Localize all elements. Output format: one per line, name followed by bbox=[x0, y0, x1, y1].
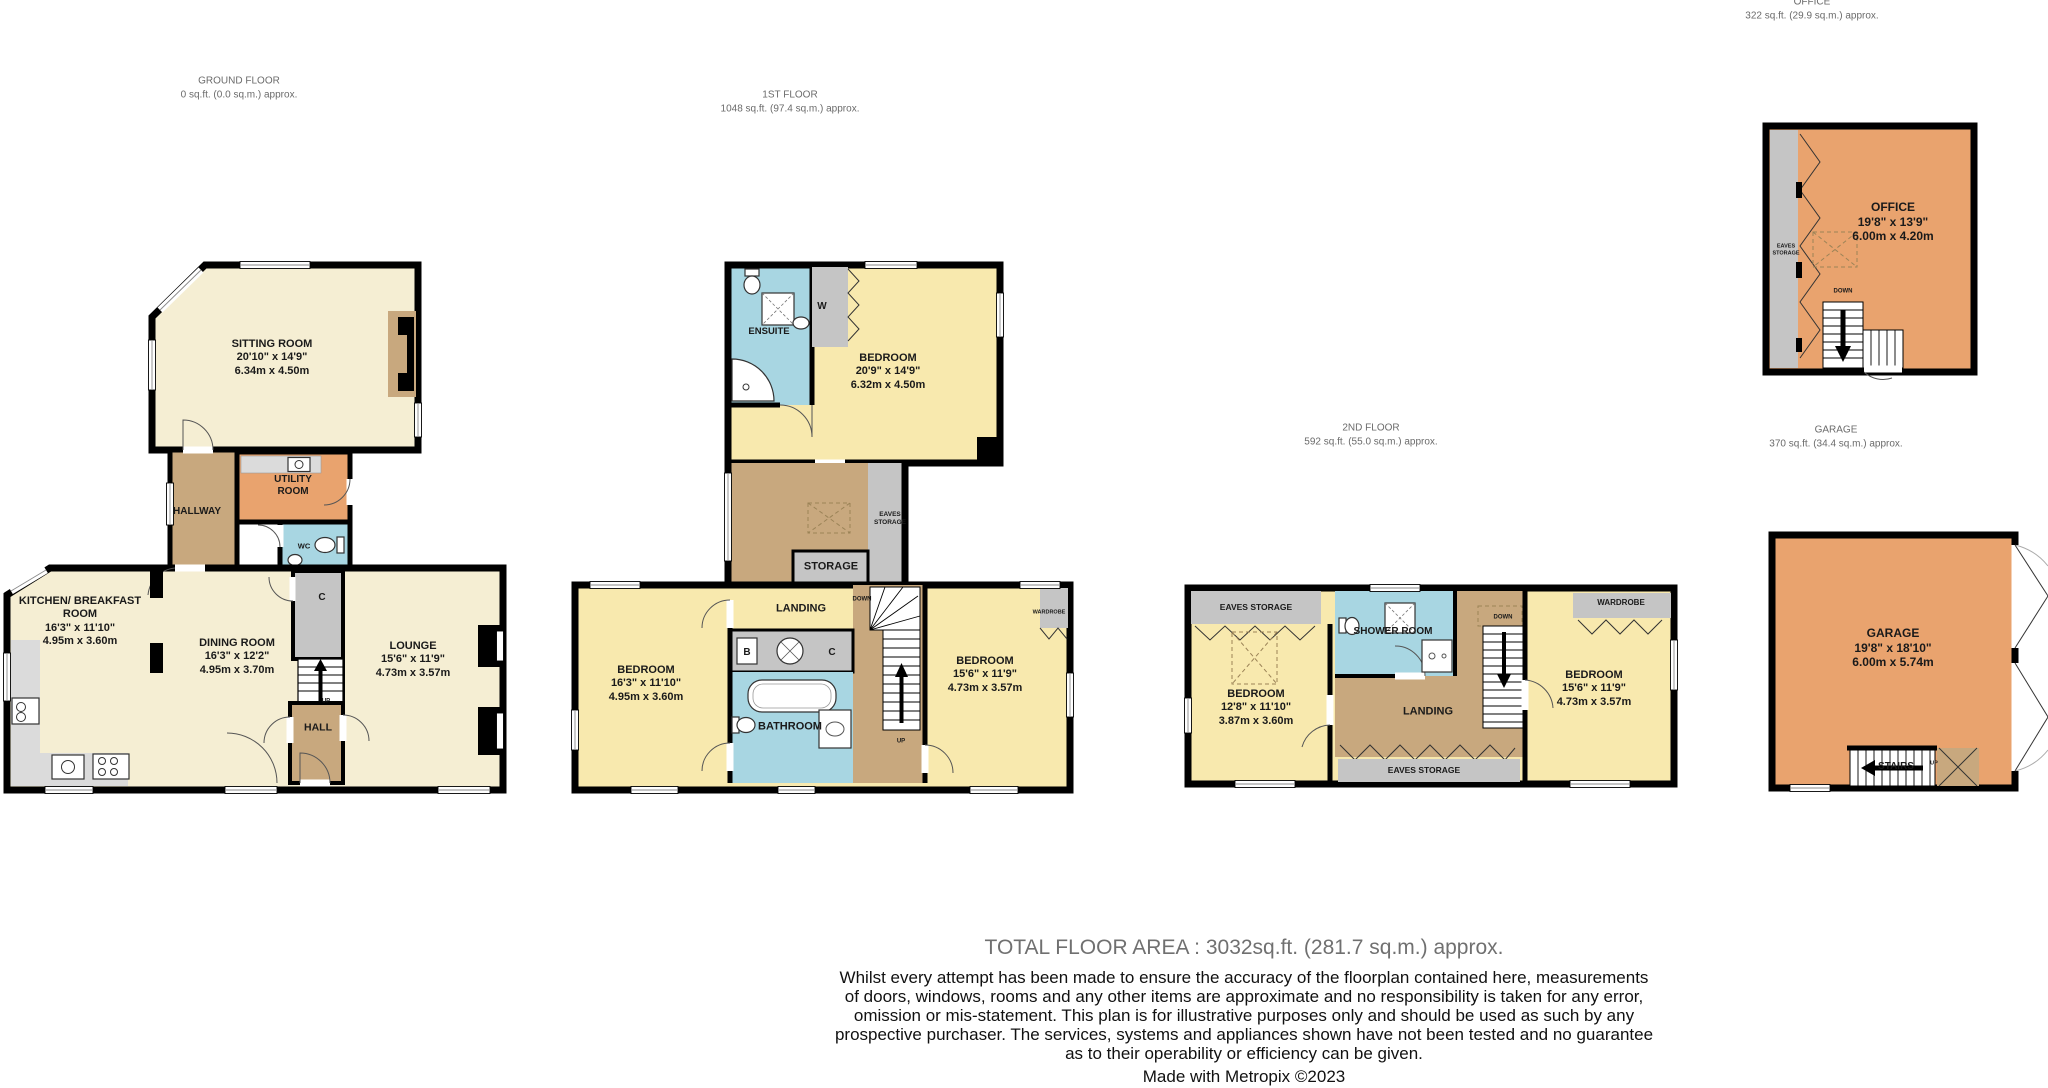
total-floor-area: TOTAL FLOOR AREA : 3032sq.ft. (281.7 sq.… bbox=[984, 936, 1503, 960]
office-metric: 6.00m x 4.20m bbox=[1852, 229, 1933, 244]
eaves-storage-label-office: EAVES STORAGE bbox=[1768, 243, 1804, 256]
floor-title-second-area: 592 sq.ft. (55.0 sq.m.) approx. bbox=[1304, 435, 1437, 449]
lounge-metric: 4.73m x 3.57m bbox=[376, 667, 451, 680]
wardrobe-label-first: WARDROBE bbox=[1033, 610, 1066, 617]
stairs-down-label-second: DOWN bbox=[1494, 614, 1513, 621]
cupboard-label-first: C bbox=[828, 647, 835, 659]
floor-title-second-name: 2ND FLOOR bbox=[1304, 422, 1437, 436]
room-label-dining-room: DINING ROOM 16'3" x 12'2" 4.95m x 3.70m bbox=[199, 637, 275, 677]
room-label-garage: GARAGE 19'8" x 18'10" 6.00m x 5.74m bbox=[1852, 626, 1933, 670]
floor-title-office-name: OFFICE bbox=[1745, 0, 1878, 9]
dining-room-metric: 4.95m x 3.70m bbox=[199, 664, 275, 677]
floor-title-garage-area: 370 sq.ft. (34.4 sq.m.) approx. bbox=[1769, 437, 1902, 451]
bedroom-2-metric: 4.95m x 3.60m bbox=[609, 691, 684, 704]
stairs-up-label-garage: UP bbox=[1930, 761, 1938, 768]
ground-floor-plan bbox=[0, 255, 512, 795]
eaves-storage-label-second-bottom: EAVES STORAGE bbox=[1388, 765, 1460, 775]
lounge-name: LOUNGE bbox=[376, 640, 451, 653]
room-label-lounge: LOUNGE 15'6" x 11'9" 4.73m x 3.57m bbox=[376, 640, 451, 680]
kitchen-metric: 4.95m x 3.60m bbox=[17, 635, 143, 648]
kitchen-name: KITCHEN/ BREAKFAST ROOM bbox=[17, 595, 143, 622]
bedroom-5-imperial: 15'6" x 11'9" bbox=[1557, 682, 1632, 695]
first-floor-plan bbox=[565, 255, 1085, 795]
eaves-storage-label-second-top: EAVES STORAGE bbox=[1220, 602, 1292, 612]
room-label-bedroom-3: BEDROOM 15'6" x 11'9" 4.73m x 3.57m bbox=[948, 655, 1023, 695]
floor-title-ground-area: 0 sq.ft. (0.0 sq.m.) approx. bbox=[181, 88, 298, 102]
stairs-label-garage: STAIRS bbox=[1878, 761, 1914, 773]
bedroom-2-imperial: 16'3" x 11'10" bbox=[609, 677, 684, 690]
room-label-bedroom-2: BEDROOM 16'3" x 11'10" 4.95m x 3.60m bbox=[609, 664, 684, 704]
stairs-up-label-first: UP bbox=[897, 738, 905, 745]
floor-title-second: 2ND FLOOR 592 sq.ft. (55.0 sq.m.) approx… bbox=[1304, 422, 1437, 449]
room-label-shower-room: SHOWER ROOM bbox=[1354, 626, 1433, 638]
room-label-kitchen: KITCHEN/ BREAKFAST ROOM 16'3" x 11'10" 4… bbox=[17, 595, 143, 649]
made-with-credit: Made with Metropix ©2023 bbox=[1143, 1067, 1345, 1087]
floorplan-page: GROUND FLOOR 0 sq.ft. (0.0 sq.m.) approx… bbox=[0, 0, 2048, 1088]
office-imperial: 19'8" x 13'9" bbox=[1852, 215, 1933, 230]
floor-title-ground: GROUND FLOOR 0 sq.ft. (0.0 sq.m.) approx… bbox=[181, 75, 298, 102]
stairs-down-label-first: DOWN bbox=[853, 596, 872, 603]
room-label-sitting-room: SITTING ROOM 20'10" x 14'9" 6.34m x 4.50… bbox=[232, 338, 313, 378]
floor-title-first: 1ST FLOOR 1048 sq.ft. (97.4 sq.m.) appro… bbox=[721, 89, 860, 116]
room-label-utility-room: UTILITY ROOM bbox=[264, 474, 322, 498]
bedroom-3-imperial: 15'6" x 11'9" bbox=[948, 668, 1023, 681]
room-label-landing-second: LANDING bbox=[1403, 705, 1453, 718]
bedroom-5-metric: 4.73m x 3.57m bbox=[1557, 696, 1632, 709]
floor-title-first-area: 1048 sq.ft. (97.4 sq.m.) approx. bbox=[721, 102, 860, 116]
room-label-hall: HALL bbox=[304, 722, 332, 735]
cupboard-label-ground: C bbox=[318, 592, 325, 604]
lounge-imperial: 15'6" x 11'9" bbox=[376, 653, 451, 666]
room-label-office: OFFICE 19'8" x 13'9" 6.00m x 4.20m bbox=[1852, 200, 1933, 244]
room-label-bedroom-master: BEDROOM 20'9" x 14'9" 6.32m x 4.50m bbox=[851, 352, 926, 392]
wardrobe-label-second: WARDROBE bbox=[1597, 598, 1645, 608]
disclaimer-text: Whilst every attempt has been made to en… bbox=[764, 968, 1724, 1063]
bedroom-4-imperial: 12'8" x 11'10" bbox=[1219, 701, 1294, 714]
dining-room-name: DINING ROOM bbox=[199, 637, 275, 650]
bedroom-master-imperial: 20'9" x 14'9" bbox=[851, 365, 926, 378]
floor-title-first-name: 1ST FLOOR bbox=[721, 89, 860, 103]
garage-name: GARAGE bbox=[1852, 626, 1933, 641]
office-name: OFFICE bbox=[1852, 200, 1933, 215]
floor-title-office-area: 322 sq.ft. (29.9 sq.m.) approx. bbox=[1745, 9, 1878, 23]
room-label-storage: STORAGE bbox=[804, 560, 858, 573]
bedroom-4-name: BEDROOM bbox=[1219, 688, 1294, 701]
dining-room-imperial: 16'3" x 12'2" bbox=[199, 650, 275, 663]
room-label-bedroom-5: BEDROOM 15'6" x 11'9" 4.73m x 3.57m bbox=[1557, 669, 1632, 709]
sitting-room-imperial: 20'10" x 14'9" bbox=[232, 351, 313, 364]
sitting-room-name: SITTING ROOM bbox=[232, 338, 313, 351]
kitchen-imperial: 16'3" x 11'10" bbox=[17, 622, 143, 635]
bedroom-4-metric: 3.87m x 3.60m bbox=[1219, 715, 1294, 728]
wardrobe-w-label: W bbox=[817, 301, 826, 313]
stairs-down-label-office: DOWN bbox=[1834, 288, 1853, 295]
room-label-bathroom: BATHROOM bbox=[758, 720, 822, 733]
bedroom-master-name: BEDROOM bbox=[851, 352, 926, 365]
bedroom-2-name: BEDROOM bbox=[609, 664, 684, 677]
eaves-storage-label-first: EAVES STORAGE bbox=[868, 511, 912, 527]
bedroom-3-name: BEDROOM bbox=[948, 655, 1023, 668]
room-label-bedroom-4: BEDROOM 12'8" x 11'10" 3.87m x 3.60m bbox=[1219, 688, 1294, 728]
bedroom-3-metric: 4.73m x 3.57m bbox=[948, 682, 1023, 695]
boiler-b-label: B bbox=[743, 647, 750, 659]
garage-imperial: 19'8" x 18'10" bbox=[1852, 641, 1933, 656]
room-label-wc: WC bbox=[298, 541, 311, 550]
room-label-hallway: HALLWAY bbox=[173, 506, 221, 518]
sitting-room-metric: 6.34m x 4.50m bbox=[232, 365, 313, 378]
room-label-ensuite: ENSUITE bbox=[748, 326, 789, 338]
floor-title-ground-name: GROUND FLOOR bbox=[181, 75, 298, 89]
floor-title-garage-name: GARAGE bbox=[1769, 424, 1902, 438]
floor-title-office: OFFICE 322 sq.ft. (29.9 sq.m.) approx. bbox=[1745, 0, 1878, 23]
bedroom-master-metric: 6.32m x 4.50m bbox=[851, 379, 926, 392]
room-label-landing-first: LANDING bbox=[776, 602, 826, 615]
bedroom-5-name: BEDROOM bbox=[1557, 669, 1632, 682]
garage-metric: 6.00m x 5.74m bbox=[1852, 655, 1933, 670]
stairs-up-label-ground: UP bbox=[322, 698, 330, 705]
floor-title-garage: GARAGE 370 sq.ft. (34.4 sq.m.) approx. bbox=[1769, 424, 1902, 451]
